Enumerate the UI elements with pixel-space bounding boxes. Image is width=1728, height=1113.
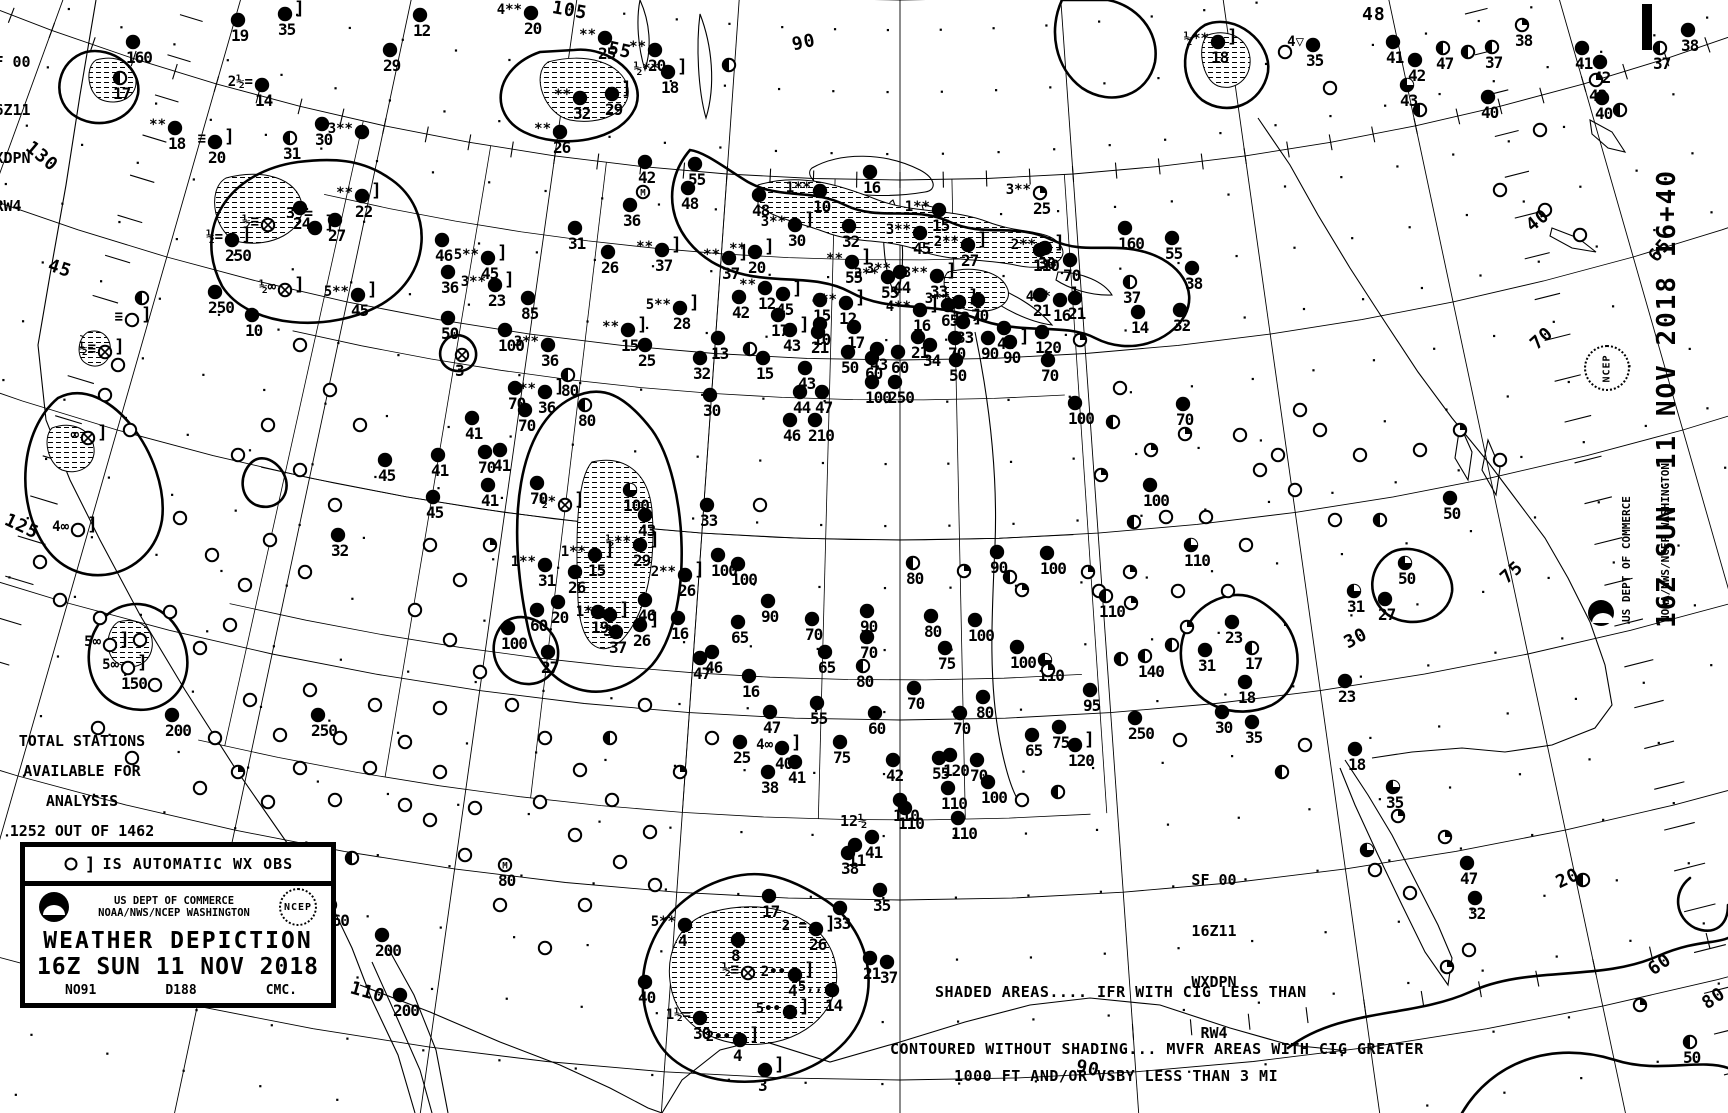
ceiling-value: 250: [208, 300, 234, 316]
ceiling-value: 35: [1245, 730, 1262, 746]
margin-ncep-label: NCEP: [1602, 354, 1613, 382]
ceiling-value: 26: [601, 260, 618, 276]
ceiling-value: 23: [1338, 689, 1355, 705]
auto-obs-bracket: ]: [1084, 731, 1095, 749]
ceiling-value: 70: [518, 418, 535, 434]
graticule-label: 48: [1362, 4, 1386, 25]
wx-symbol: **: [336, 186, 353, 200]
ceiling-value: 31: [538, 573, 555, 589]
stamp-line: SF 00: [0, 54, 50, 70]
ceiling-value: 40: [1481, 105, 1498, 121]
ceiling-value: 50: [949, 368, 966, 384]
auto-obs-bracket: ]: [1019, 328, 1030, 346]
ceiling-value: 210: [808, 428, 834, 444]
wx-symbol: 4∞: [756, 738, 773, 752]
ceiling-value: 200: [393, 1003, 419, 1019]
ceiling-value: 45: [913, 241, 930, 257]
ceiling-value: 20: [524, 21, 541, 37]
ceiling-value: 80: [856, 674, 873, 690]
auto-obs-bracket: ]: [604, 541, 615, 559]
wx-symbol: 5**: [651, 915, 676, 929]
ceiling-value: 31: [283, 146, 300, 162]
weather-depiction-chart: 1601719]3529122½=14**18≡]2031303**½=]250…: [0, 0, 1728, 1113]
ceiling-value: 70: [971, 308, 988, 324]
auto-obs-bracket: ]: [294, 276, 305, 294]
ceiling-value: 46: [783, 428, 800, 444]
ceiling-value: 200: [375, 943, 401, 959]
auto-obs-bracket: ]: [861, 248, 872, 266]
ceiling-value: 3: [455, 363, 464, 379]
ceiling-value: 36: [441, 280, 458, 296]
ceiling-value: 29: [383, 58, 400, 74]
auto-obs-bracket: ]: [764, 238, 775, 256]
ceiling-value: 65: [731, 630, 748, 646]
ceiling-value: 14: [1131, 320, 1148, 336]
auto-obs-bracket: ]: [504, 271, 515, 289]
ceiling-value: 16: [913, 318, 930, 334]
ceiling-value: 33: [700, 513, 717, 529]
agency-line: NOAA/NWS/NCEP WASHINGTON: [98, 907, 250, 919]
code-left: NO91: [65, 983, 96, 998]
ceiling-value: 65: [941, 313, 958, 329]
ncep-logo-icon: NCEP: [279, 888, 317, 926]
ceiling-value: 15: [588, 563, 605, 579]
ceiling-value: 45: [776, 302, 793, 318]
product-stamp-top-left: SF 00 16Z11 WXDPN RW4: [0, 22, 50, 246]
agency-text: US DEPT OF COMMERCE NOAA/NWS/NCEP WASHIN…: [69, 895, 279, 919]
ceiling-value: 30: [1215, 720, 1232, 736]
ceiling-value: 31: [1347, 599, 1364, 615]
wx-symbol: ≡: [198, 132, 206, 146]
auto-obs-bracket: ]: [574, 491, 585, 509]
ceiling-value: 29: [633, 553, 650, 569]
ceiling-value: 85: [521, 306, 538, 322]
ncep-label: NCEP: [284, 902, 312, 913]
ceiling-value: 41: [865, 845, 882, 861]
wx-symbol: 3**: [514, 335, 539, 349]
ceiling-value: 46: [638, 608, 655, 624]
ceiling-value: 80: [976, 705, 993, 721]
ceiling-value: 95: [1083, 698, 1100, 714]
wx-symbol: 2**: [934, 235, 959, 249]
auto-obs-bracket: ]: [804, 211, 815, 229]
ceiling-value: 27: [541, 660, 558, 676]
wx-symbol: **: [534, 122, 551, 136]
ceiling-value: 11: [848, 853, 865, 869]
ceiling-value: 250: [888, 390, 914, 406]
ceiling-value: 25: [638, 353, 655, 369]
auto-obs-bracket: ]: [855, 289, 866, 307]
ceiling-value: 34: [923, 353, 940, 369]
ceiling-value: 110: [1099, 604, 1125, 620]
ceiling-value: 41: [1575, 56, 1592, 72]
ceiling-value: 80: [924, 624, 941, 640]
ceiling-value: 70: [907, 696, 924, 712]
auto-obs-bracket: ]: [738, 244, 749, 262]
ceiling-value: 100: [1010, 655, 1036, 671]
margin-ncep-logo-icon: NCEP: [1584, 345, 1630, 391]
ceiling-value: 60: [868, 721, 885, 737]
wx-symbol: 1**: [511, 555, 536, 569]
ceiling-value: 50: [441, 326, 458, 342]
auto-obs-legend-row: ] IS AUTOMATIC WX OBS: [25, 847, 331, 886]
annotation-text: 12½: [840, 812, 867, 830]
ceiling-value: 25: [1033, 201, 1050, 217]
margin-noaa-logo-icon: [1588, 600, 1614, 626]
ceiling-value: 21: [811, 340, 828, 356]
ceiling-value: 32: [573, 106, 590, 122]
ceiling-value: 10: [245, 323, 262, 339]
ceiling-value: 160: [1118, 236, 1144, 252]
totals-line: ANALYSIS: [0, 786, 164, 816]
auto-obs-bracket: ]: [671, 236, 682, 254]
margin-agency-line: NOAA/NWS/NCEP WASHINGTON: [1659, 392, 1672, 622]
auto-obs-bracket: ]: [97, 424, 108, 442]
ceiling-value: 21: [1068, 306, 1085, 322]
auto-obs-bracket: ]: [792, 280, 803, 298]
auto-obs-bracket: ]: [689, 294, 700, 312]
ceiling-value: 55: [810, 711, 827, 727]
auto-obs-bracket: ]: [677, 58, 688, 76]
wx-symbol: ≡: [115, 310, 123, 324]
wx-symbol: **: [602, 320, 619, 334]
note-line: CONTOURED WITHOUT SHADING... MVFR AREAS …: [890, 1036, 1538, 1062]
ceiling-value: 37: [1485, 55, 1502, 71]
ceiling-value: 16: [671, 626, 688, 642]
ceiling-value: 23: [488, 293, 505, 309]
auto-obs-bracket: ]: [367, 281, 378, 299]
svg-text:M: M: [640, 188, 646, 198]
ceiling-value: 31: [1198, 658, 1215, 674]
ceiling-value: 90: [1003, 350, 1020, 366]
ceiling-value: 15: [932, 218, 949, 234]
auto-obs-bracket: ]: [554, 378, 565, 396]
ceiling-value: 23: [1225, 630, 1242, 646]
stamp-line: RW4: [0, 198, 50, 214]
product-title: WEATHER DEPICTION: [25, 928, 331, 954]
ceiling-value: 17: [113, 86, 130, 102]
ceiling-value: 75: [833, 750, 850, 766]
ceiling-value: 60: [530, 618, 547, 634]
ceiling-value: 4: [788, 983, 797, 999]
ceiling-value: 55: [1165, 246, 1182, 262]
title-legend-box: ] IS AUTOMATIC WX OBS US DEPT OF COMMERC…: [20, 842, 336, 1008]
wx-symbol: 3**: [761, 215, 786, 229]
ceiling-value: 12: [413, 23, 430, 39]
auto-obs-label: IS AUTOMATIC WX OBS: [103, 855, 294, 873]
auto-obs-bracket: ]: [804, 961, 815, 979]
ceiling-value: 20: [208, 150, 225, 166]
auto-obs-bracket: ]: [977, 231, 988, 249]
ceiling-value: 16: [863, 180, 880, 196]
ceiling-value: 3: [758, 1078, 767, 1094]
ceiling-value: 65: [818, 660, 835, 676]
auto-obs-bracket: ]: [791, 734, 802, 752]
ceiling-value: 46: [705, 660, 722, 676]
ceiling-value: 18: [661, 80, 678, 96]
ceiling-value: 37: [1653, 56, 1670, 72]
wx-symbol: 3**: [1006, 183, 1031, 197]
ceiling-value: 19: [591, 620, 608, 636]
ceiling-value: 100: [1143, 493, 1169, 509]
ceiling-value: 35: [278, 22, 295, 38]
ceiling-value: 38: [761, 780, 778, 796]
wx-symbol: **: [579, 28, 596, 42]
wx-symbol: 2••: [761, 965, 786, 979]
ceiling-value: 25: [733, 750, 750, 766]
wx-symbol: ½≡: [242, 215, 259, 229]
wx-symbol: 2 =: [782, 919, 807, 933]
wx-symbol: 5∞: [84, 635, 101, 649]
ceiling-value: 38: [1681, 38, 1698, 54]
ceiling-value: 16: [742, 684, 759, 700]
ceiling-value: 70: [948, 346, 965, 362]
ceiling-value: 100: [501, 636, 527, 652]
ceiling-value: 41: [1386, 50, 1403, 66]
ceiling-value: 38: [1185, 276, 1202, 292]
wx-symbol: 1**: [561, 545, 586, 559]
ceiling-value: 70: [1041, 368, 1058, 384]
auto-obs-bracket: ]: [694, 561, 705, 579]
auto-obs-bracket: ]: [371, 182, 382, 200]
ceiling-value: 80: [906, 571, 923, 587]
ceiling-value: 27: [961, 253, 978, 269]
totals-line: AVAILABLE FOR: [0, 756, 164, 786]
auto-obs-bracket: ]: [497, 244, 508, 262]
ceiling-value: 48: [681, 196, 698, 212]
wx-symbol: **: [636, 240, 653, 254]
wx-symbol: 3**: [461, 275, 486, 289]
ceiling-value: 110: [1033, 258, 1059, 274]
ceiling-value: 250: [1128, 726, 1154, 742]
ceiling-value: 35: [1306, 53, 1323, 69]
ceiling-value: 29: [605, 102, 622, 118]
wx-symbol: ½=: [206, 230, 223, 244]
wx-symbol: ½*: [539, 495, 556, 509]
ceiling-value: 50: [1683, 1050, 1700, 1066]
wx-symbol: ½≡: [722, 963, 739, 977]
codes-row: NO91 D188 CMC.: [25, 983, 331, 998]
auto-obs-bracket: ]: [649, 531, 660, 549]
wx-symbol: **: [554, 88, 571, 102]
stamp-line: SF 00: [1178, 872, 1250, 889]
ceiling-value: 44: [893, 280, 910, 296]
auto-obs-bracket: ]: [1227, 28, 1238, 46]
ceiling-value: 47: [1436, 56, 1453, 72]
wx-symbol: ½**: [634, 62, 659, 76]
ceiling-value: 4: [678, 933, 687, 949]
ceiling-value: 70: [1063, 268, 1080, 284]
svg-text:M: M: [502, 861, 508, 871]
wx-symbol: 4**: [812, 293, 837, 307]
ceiling-value: 18: [1211, 50, 1228, 66]
wx-symbol: 3**: [886, 223, 911, 237]
ceiling-value: 19: [231, 28, 248, 44]
ceiling-value: 18: [1238, 690, 1255, 706]
wx-symbol: 4**: [886, 300, 911, 314]
wx-symbol: 3**: [511, 382, 536, 396]
ceiling-value: 38: [1515, 33, 1532, 49]
auto-obs-bracket: ]: [137, 654, 148, 672]
ceiling-value: 41: [481, 493, 498, 509]
wx-symbol: ∞: [71, 428, 79, 442]
open-circle-icon: [63, 856, 79, 872]
ceiling-value: 36: [541, 353, 558, 369]
ceiling-value: 45: [378, 468, 395, 484]
ceiling-value: 32: [693, 366, 710, 382]
wx-symbol: 2**: [651, 565, 676, 579]
wx-symbol: ½≡: [79, 342, 96, 356]
wx-symbol: 5**: [454, 248, 479, 262]
stamp-line: 16Z11: [0, 102, 50, 118]
ceiling-value: 120: [943, 763, 969, 779]
wx-symbol: 1**: [905, 200, 930, 214]
totals-line: TOTAL STATIONS: [0, 726, 164, 756]
wx-symbol: 5**: [324, 285, 349, 299]
ceiling-value: 110: [898, 816, 924, 832]
ceiling-value: 46: [435, 248, 452, 264]
auto-obs-bracket: ]: [141, 306, 152, 324]
ceiling-value: 250: [225, 248, 251, 264]
ceiling-value: 41: [788, 770, 805, 786]
ceiling-value: 27: [1378, 607, 1395, 623]
ceiling-value: 17: [1245, 656, 1262, 672]
wx-symbol: 5••: [756, 1002, 781, 1016]
ceiling-value: 36: [623, 213, 640, 229]
auto-obs-bracket: ]: [799, 998, 810, 1016]
ceiling-value: 43: [783, 338, 800, 354]
ceiling-value: 41: [465, 426, 482, 442]
note-no-contours: NO CONTOURS .... VFR AREAS WITH CIG GREA…: [938, 1066, 1395, 1113]
frame-mark: [1642, 4, 1652, 50]
ceiling-value: 50: [841, 360, 858, 376]
auto-obs-bracket: ]: [774, 1056, 785, 1074]
ceiling-value: 110: [951, 826, 977, 842]
ceiling-value: 14: [255, 93, 272, 109]
ceiling-value: 50: [1398, 571, 1415, 587]
wx-symbol: **: [149, 118, 166, 132]
ceiling-value: 80: [498, 873, 515, 889]
code-right: CMC.: [266, 983, 297, 998]
annotation-text: 3 =: [286, 204, 313, 222]
ceiling-value: 18: [1348, 757, 1365, 773]
ceiling-value: 42: [886, 768, 903, 784]
ceiling-value: 15: [756, 366, 773, 382]
ceiling-value: 22: [355, 204, 372, 220]
ceiling-value: 100: [981, 790, 1007, 806]
ceiling-value: 65: [1025, 743, 1042, 759]
wx-symbol: 4**: [497, 3, 522, 17]
wx-symbol: 4∞: [52, 520, 69, 534]
ceiling-value: 26: [568, 580, 585, 596]
ceiling-value: 37: [722, 266, 739, 282]
wx-symbol: 2••: [706, 1030, 731, 1044]
wx-symbol: **: [826, 252, 843, 266]
ceiling-value: 80: [578, 413, 595, 429]
ceiling-value: 18: [168, 136, 185, 152]
ceiling-value: 45: [426, 505, 443, 521]
ceiling-value: 47: [763, 720, 780, 736]
auto-obs-bracket: ]: [294, 0, 305, 18]
ceiling-value: 30: [788, 233, 805, 249]
wx-symbol: 4▽: [1287, 35, 1304, 49]
ceiling-value: 120: [1068, 753, 1094, 769]
ceiling-value: 13: [711, 346, 728, 362]
ceiling-value: 100: [1040, 561, 1066, 577]
ceiling-value: 70: [953, 721, 970, 737]
ceiling-value: 160: [126, 50, 152, 66]
ceiling-value: 17: [762, 904, 779, 920]
ceiling-value: 90: [981, 346, 998, 362]
wx-symbol: **: [703, 248, 720, 262]
wx-symbol: 2½=: [228, 75, 253, 89]
ceiling-value: 140: [1138, 664, 1164, 680]
agency-row: US DEPT OF COMMERCE NOAA/NWS/NCEP WASHIN…: [25, 886, 331, 928]
ceiling-value: 21: [1033, 303, 1050, 319]
wx-symbol: 1**: [786, 181, 811, 195]
auto-obs-bracket: ]: [619, 601, 630, 619]
auto-obs-bracket: ]: [87, 516, 98, 534]
auto-obs-bracket: ]: [749, 1026, 760, 1044]
ceiling-value: 32: [1173, 318, 1190, 334]
ceiling-value: 37: [609, 640, 626, 656]
ceiling-value: 32: [1468, 906, 1485, 922]
noaa-logo-icon: [39, 892, 69, 922]
ceiling-value: 55: [845, 270, 862, 286]
ceiling-value: 50: [1443, 506, 1460, 522]
dept-line: US DEPT OF COMMERCE: [114, 895, 234, 907]
ceiling-value: 47: [1460, 871, 1477, 887]
ceiling-value: 26: [809, 937, 826, 953]
margin-dept-line: US DEPT OF COMMERCE: [1620, 392, 1633, 622]
ceiling-value: 35: [873, 898, 890, 914]
ceiling-value: 14: [825, 998, 842, 1014]
ceiling-value: 100: [1068, 411, 1094, 427]
auto-obs-bracket: ]: [1054, 234, 1065, 252]
ceiling-value: 31: [568, 236, 585, 252]
ceiling-value: 40: [1595, 106, 1612, 122]
ceiling-value: 32: [842, 234, 859, 250]
ceiling-value: 26: [553, 140, 570, 156]
ceiling-value: 33: [833, 916, 850, 932]
ceiling-value: 20: [551, 610, 568, 626]
ceiling-value: 150: [121, 676, 147, 692]
ceiling-value: 30: [703, 403, 720, 419]
ceiling-value: 75: [938, 656, 955, 672]
wx-symbol: ½**: [1184, 32, 1209, 46]
ceiling-value: 90: [761, 609, 778, 625]
wx-symbol: ½∞: [259, 280, 276, 294]
ceiling-value: 26: [678, 583, 695, 599]
auto-obs-bracket: ]: [114, 338, 125, 356]
ceiling-value: 100: [968, 628, 994, 644]
ceiling-value: 41: [493, 458, 510, 474]
ceiling-value: 70: [805, 627, 822, 643]
ceiling-value: 37: [655, 258, 672, 274]
wx-symbol: 3**: [328, 122, 353, 136]
auto-obs-bracket: ]: [85, 854, 97, 875]
auto-obs-bracket: ]: [119, 631, 130, 649]
margin-agency-block: US DEPT OF COMMERCE NOAA/NWS/NCEP WASHIN…: [1594, 392, 1698, 622]
ceiling-value: 40: [638, 990, 655, 1006]
code-mid: D188: [165, 983, 196, 998]
stamp-line: WXDPN: [0, 150, 50, 166]
ceiling-value: 110: [1184, 553, 1210, 569]
ceiling-value: 41: [431, 463, 448, 479]
auto-obs-bracket: ]: [946, 262, 957, 280]
auto-obs-bracket: ]: [637, 316, 648, 334]
auto-obs-bracket: ]: [224, 128, 235, 146]
